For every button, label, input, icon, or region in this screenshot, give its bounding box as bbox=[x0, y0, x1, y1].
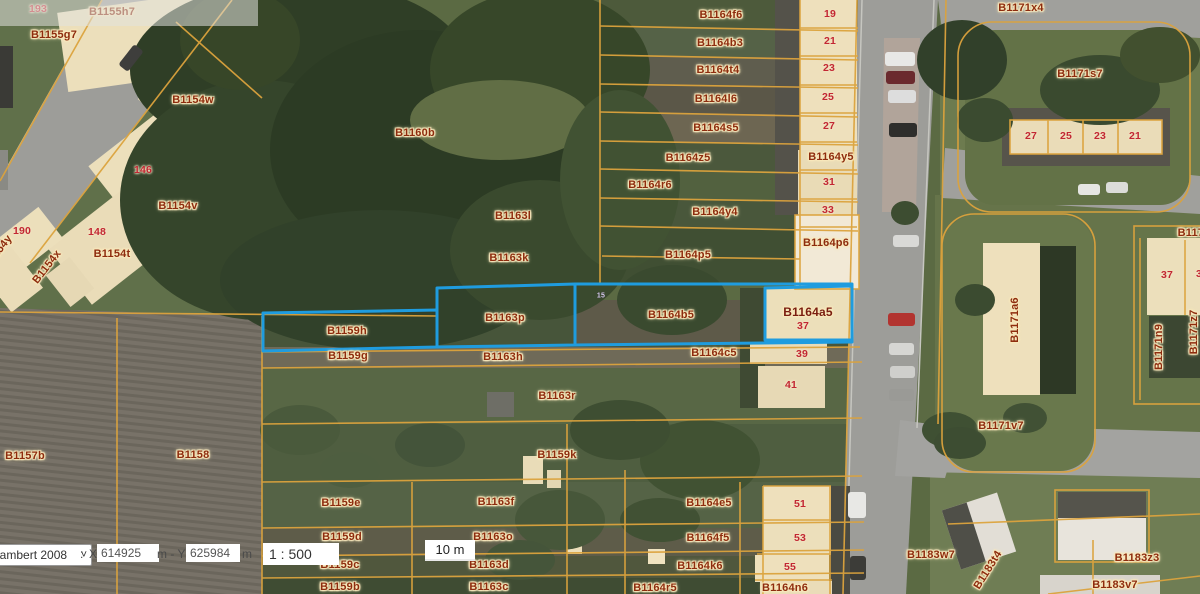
scale-bar: 10 m bbox=[425, 540, 475, 561]
x-coordinate-input[interactable] bbox=[97, 544, 159, 562]
crs-select[interactable]: Lambert 2008 ˅ bbox=[0, 544, 92, 566]
scale-input[interactable] bbox=[263, 543, 339, 565]
colon-separator: : bbox=[80, 547, 83, 561]
map-viewer: 193B1155h7B1155g7B1154w146B1154v190148B1… bbox=[0, 0, 1200, 594]
x-label: X bbox=[89, 547, 97, 561]
xy-unit-label: m - Y bbox=[157, 547, 185, 561]
crs-selected-value: Lambert 2008 bbox=[0, 548, 67, 562]
m-unit-label: m bbox=[242, 547, 252, 561]
scale-bar-label: 10 m bbox=[436, 542, 465, 557]
y-coordinate-input[interactable] bbox=[186, 544, 240, 562]
coordinate-toolbar bbox=[0, 0, 258, 26]
aerial-map[interactable] bbox=[0, 0, 1200, 594]
